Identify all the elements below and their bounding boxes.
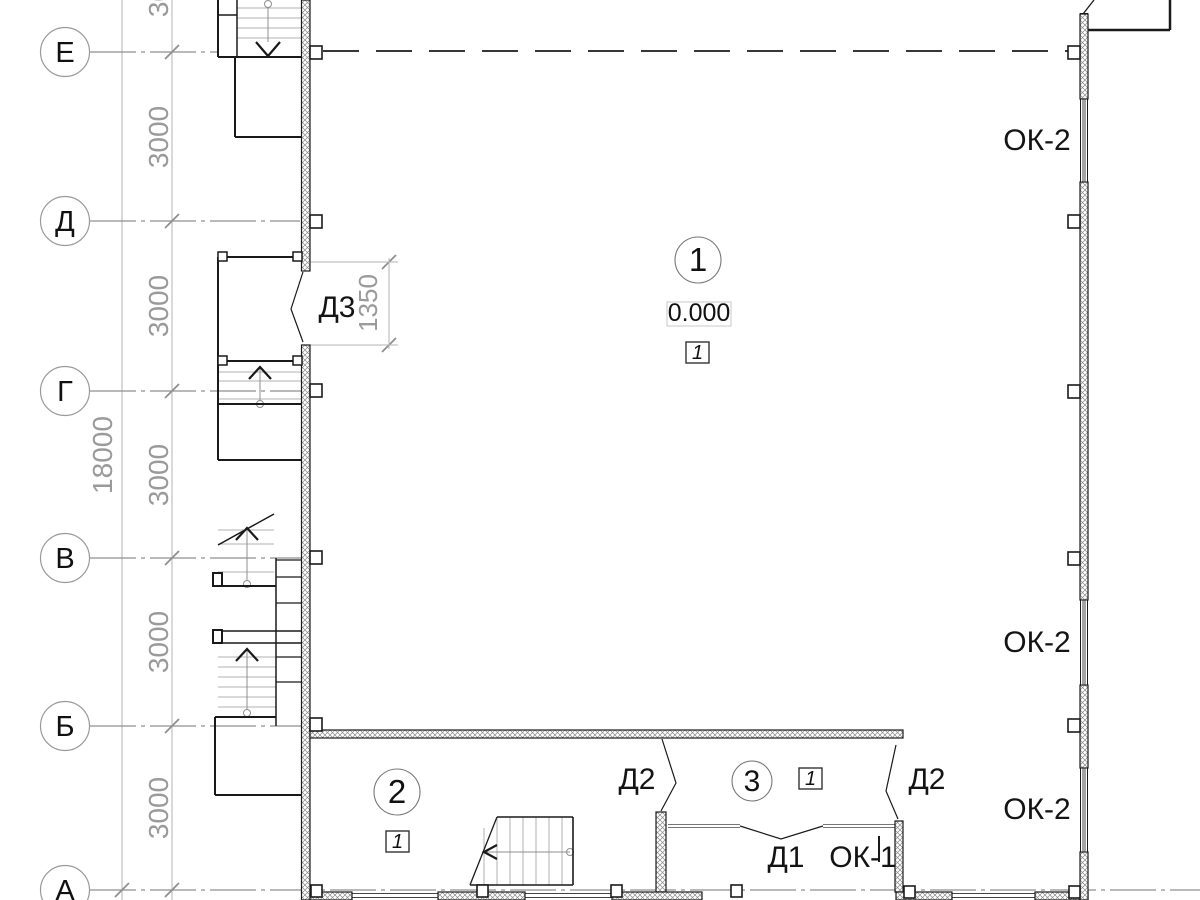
window-ok2-1 bbox=[1081, 600, 1088, 685]
room2-top-wall bbox=[310, 730, 903, 738]
room-number-3: 3 bbox=[744, 765, 761, 798]
bottom-wall-3 bbox=[612, 892, 702, 900]
floor-plan-sheet: ЕДГВБА1230.000111Д3Д2Д2Д1ОК-1ОК-2ОК-2ОК-… bbox=[0, 0, 1200, 900]
dim-text-1350: 1350 bbox=[353, 274, 383, 332]
zone-label-2: 1 bbox=[805, 768, 816, 790]
pilaster-6 bbox=[1068, 215, 1080, 228]
door-opening-d2-right bbox=[886, 745, 898, 819]
door-opening-d3 bbox=[291, 272, 303, 342]
door-label-d1: Д1 bbox=[767, 841, 804, 874]
pilaster-bottom-4 bbox=[904, 886, 915, 898]
stair-stub-1 bbox=[213, 630, 222, 643]
pilaster-4 bbox=[310, 718, 322, 731]
dim-text-overall: 18000 bbox=[87, 416, 118, 494]
axis-bubble-label-3: В bbox=[55, 543, 74, 575]
stair-arrow-down-icon bbox=[256, 42, 280, 56]
axis-bubble-label-2: Г bbox=[57, 376, 73, 408]
stair-stub-0 bbox=[213, 573, 222, 586]
window-ok2-0 bbox=[1081, 99, 1088, 182]
left-wall-lower bbox=[302, 345, 311, 900]
window-label-ok2-1: ОК-2 bbox=[1003, 124, 1071, 157]
pilaster-bottom-2 bbox=[611, 885, 622, 897]
dim-text-bay-1: 3000 bbox=[143, 106, 174, 168]
pilaster-3 bbox=[310, 551, 322, 564]
door-label-d2-right: Д2 bbox=[908, 763, 945, 796]
window-label-ok2-3: ОК-2 bbox=[1003, 793, 1071, 826]
pilaster-bottom-5 bbox=[1069, 886, 1080, 898]
door-label-d2-left: Д2 bbox=[618, 763, 655, 796]
right-wall-1 bbox=[1080, 14, 1088, 99]
dim-text-bay-3: 3000 bbox=[143, 444, 174, 506]
zone-label-0: 1 bbox=[692, 342, 703, 364]
room-number-2: 2 bbox=[388, 773, 406, 810]
stair-start-circle-3 bbox=[244, 710, 251, 717]
dim-text-bay-5: 3000 bbox=[143, 777, 174, 839]
plan-canvas: ЕДГВБА1230.000111Д3Д2Д2Д1ОК-1ОК-2ОК-2ОК-… bbox=[0, 0, 1200, 900]
right-wall-3 bbox=[1080, 685, 1088, 768]
jamb-square-3 bbox=[293, 356, 302, 365]
pilaster-1 bbox=[310, 215, 322, 228]
plan-line-31 bbox=[1083, 0, 1094, 14]
door-opening-d2-left bbox=[661, 739, 676, 811]
vestibule-left-wall bbox=[656, 812, 666, 892]
pilaster-0 bbox=[310, 46, 322, 59]
pilaster-8 bbox=[1068, 552, 1080, 565]
pilaster-2 bbox=[310, 384, 322, 397]
jamb-square-0 bbox=[218, 252, 227, 261]
dim-text-bay-2: 3000 bbox=[143, 275, 174, 337]
pilaster-5 bbox=[1068, 46, 1080, 59]
left-wall-upper bbox=[302, 0, 311, 271]
pilaster-9 bbox=[1068, 719, 1080, 732]
door-label-d3: Д3 bbox=[318, 291, 355, 324]
stair-start-circle-0 bbox=[265, 1, 272, 8]
pilaster-bottom-1 bbox=[477, 885, 488, 897]
pilaster-7 bbox=[1068, 385, 1080, 398]
jamb-square-2 bbox=[218, 356, 227, 365]
dim-text-bay-0: 3000 bbox=[143, 0, 174, 17]
window-ok2-2 bbox=[1081, 768, 1088, 852]
right-wall-4 bbox=[1080, 852, 1088, 900]
axis-bubble-label-4: Б bbox=[55, 711, 74, 743]
window-label-ok1: ОК-1 bbox=[829, 841, 897, 874]
window-label-ok2-2: ОК-2 bbox=[1003, 626, 1071, 659]
dim-text-bay-4: 3000 bbox=[143, 611, 174, 673]
zone-label-1: 1 bbox=[392, 831, 403, 853]
pilaster-bottom-3 bbox=[731, 885, 742, 897]
axis-bubble-label-5: А bbox=[55, 875, 75, 900]
room-number-hall: 1 bbox=[689, 241, 707, 278]
elevation-value: 0.000 bbox=[668, 299, 731, 327]
jamb-square-1 bbox=[293, 252, 302, 261]
pilaster-bottom-0 bbox=[311, 885, 322, 897]
axis-bubble-label-1: Д bbox=[55, 206, 75, 238]
door-opening-d1 bbox=[740, 826, 823, 839]
axis-bubble-label-0: Е bbox=[55, 37, 74, 69]
right-wall-2 bbox=[1080, 182, 1088, 600]
